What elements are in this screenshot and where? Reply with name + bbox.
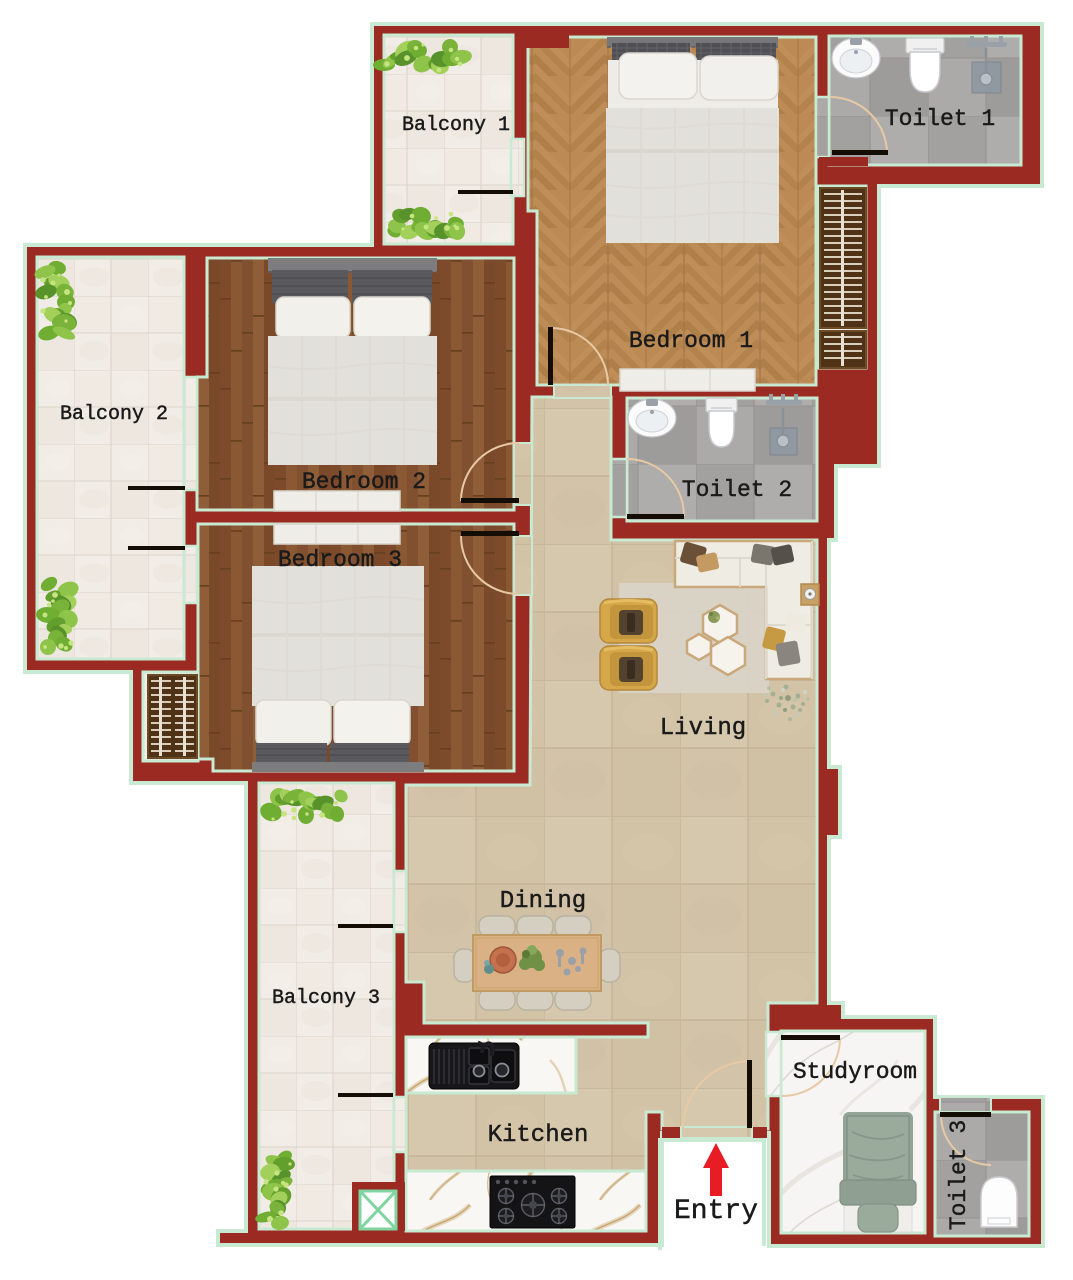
- svg-text:Studyroom: Studyroom: [793, 1059, 917, 1085]
- svg-text:Bedroom 2: Bedroom 2: [302, 469, 426, 495]
- svg-text:Bedroom 1: Bedroom 1: [629, 328, 753, 354]
- svg-text:Balcony 2: Balcony 2: [60, 403, 168, 426]
- svg-text:Living: Living: [660, 715, 746, 742]
- svg-text:Balcony 1: Balcony 1: [402, 114, 510, 137]
- svg-text:Kitchen: Kitchen: [488, 1122, 589, 1149]
- svg-text:Entry: Entry: [674, 1196, 758, 1227]
- svg-text:Balcony 3: Balcony 3: [272, 987, 380, 1010]
- svg-text:Dining: Dining: [500, 888, 586, 915]
- svg-text:Bedroom 3: Bedroom 3: [278, 547, 402, 573]
- svg-text:Toilet 3: Toilet 3: [946, 1120, 972, 1230]
- svg-text:Toilet 2: Toilet 2: [682, 477, 792, 503]
- svg-text:Toilet 1: Toilet 1: [885, 106, 995, 132]
